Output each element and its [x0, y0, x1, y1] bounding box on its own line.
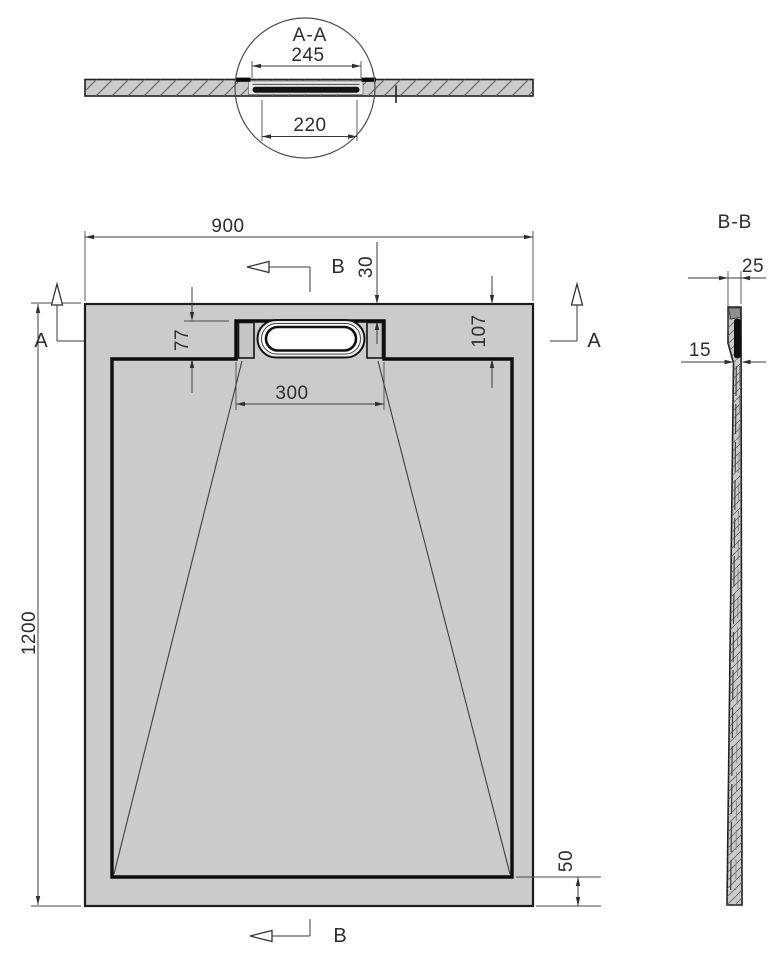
arrowhead [36, 304, 40, 313]
dim-220: 220 [262, 100, 357, 141]
section-b-label-top: B [331, 256, 344, 278]
section-arrow-up-icon [52, 284, 63, 305]
section-bb-title: B-B [718, 212, 753, 233]
arrowhead [252, 64, 261, 68]
section-arrow-left-icon [247, 262, 269, 273]
dim-220-label: 220 [293, 115, 326, 136]
dim-1200: 1200 [19, 303, 81, 906]
detail-aa-view: A-A 245 220 [85, 18, 533, 158]
drain-clamp-right [367, 323, 383, 359]
drain-flange-left [236, 78, 251, 82]
drain-cap-section [729, 308, 741, 319]
section-arrow-up-icon [572, 284, 583, 305]
drain-clamp-left [239, 323, 255, 359]
tray-outline [85, 304, 533, 906]
detail-aa-title: A-A [293, 25, 328, 46]
section-a-label-left: A [34, 330, 48, 352]
drain-channel-section [734, 319, 741, 358]
arrowhead [375, 295, 379, 304]
arrowhead [352, 64, 361, 68]
dim-300-label: 300 [275, 383, 308, 404]
dim-900: 900 [85, 216, 533, 301]
arrowhead [490, 295, 494, 304]
dim-15-label: 15 [689, 340, 711, 361]
dim-25-label: 25 [742, 256, 764, 277]
section-b-label-bottom: B [333, 925, 346, 947]
arrowhead [524, 235, 533, 239]
arrowhead [36, 896, 40, 905]
dim-50-label: 50 [556, 850, 577, 872]
dim-15: 15 [681, 340, 766, 364]
dim-77-label: 77 [172, 329, 193, 351]
section-a-label-right: A [587, 330, 601, 352]
arrowhead [85, 235, 94, 239]
arrowhead [576, 897, 580, 906]
plan-view: 900 1200 77 107 [19, 216, 601, 947]
arrowhead [719, 276, 728, 280]
dim-245: 245 [252, 45, 361, 78]
dim-245-label: 245 [291, 45, 324, 66]
drawing-sheet: A-A 245 220 [0, 0, 768, 967]
dim-30-label: 30 [356, 256, 377, 278]
drain-cover-section [253, 87, 360, 93]
section-a-marker-left: A [34, 284, 84, 352]
section-bb-view: B-B 25 15 [681, 212, 766, 905]
arrowhead [262, 134, 271, 138]
dim-900-label: 900 [211, 216, 244, 237]
section-b-marker-bottom: B [250, 919, 347, 947]
technical-drawing: A-A 245 220 [0, 0, 768, 967]
dim-107-label: 107 [469, 314, 490, 347]
section-a-marker-right: A [550, 284, 601, 352]
arrowhead [576, 877, 580, 886]
dim-25: 25 [688, 256, 766, 331]
section-arrow-left-icon [250, 931, 272, 942]
arrowhead [348, 134, 357, 138]
dim-1200-label: 1200 [19, 611, 40, 655]
drain-cover-inner [266, 327, 356, 351]
arrowhead [742, 360, 751, 364]
section-b-marker-top: B [247, 256, 345, 292]
